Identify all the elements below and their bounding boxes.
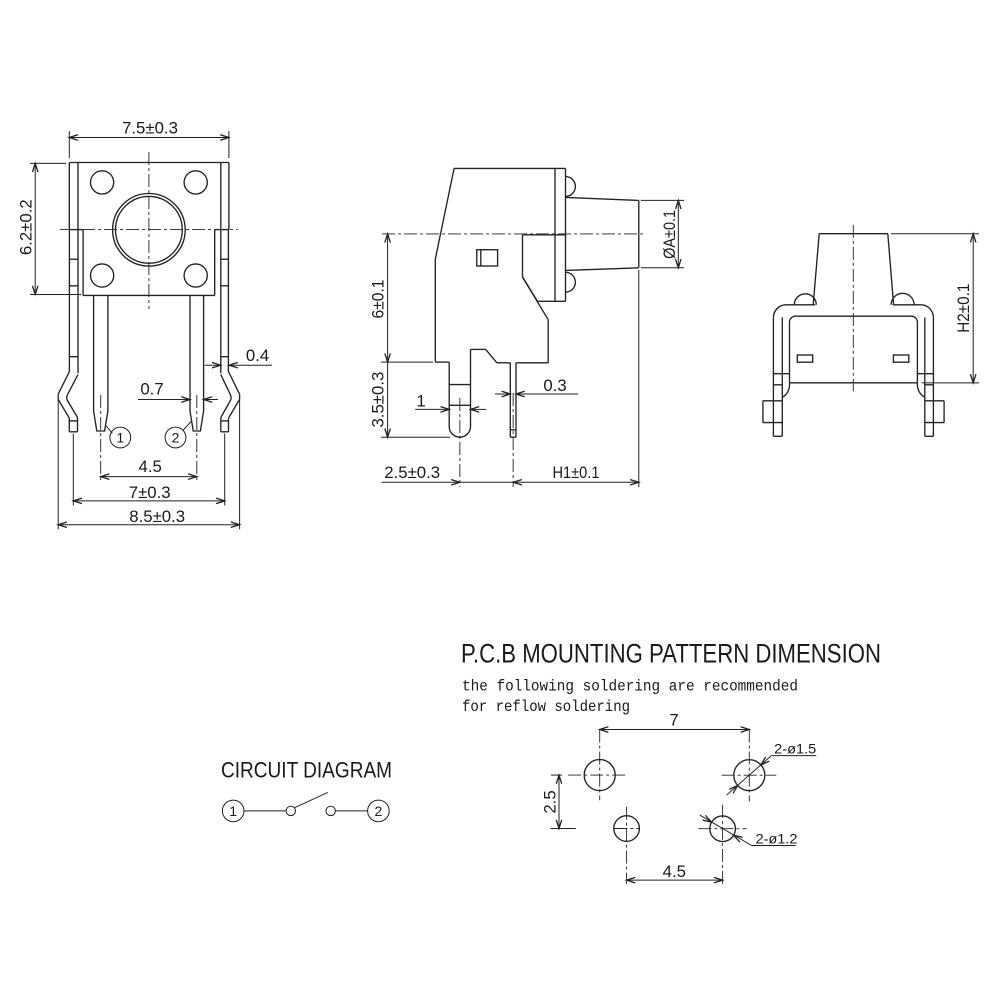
svg-text:2-ø1.5: 2-ø1.5 bbox=[774, 741, 816, 756]
svg-text:2.5±0.3: 2.5±0.3 bbox=[384, 463, 440, 482]
svg-text:1: 1 bbox=[416, 391, 425, 410]
svg-text:H2±0.1: H2±0.1 bbox=[954, 284, 973, 333]
svg-text:for reflow soldering: for reflow soldering bbox=[462, 698, 630, 716]
svg-text:4.5: 4.5 bbox=[663, 862, 686, 881]
svg-text:1: 1 bbox=[116, 430, 124, 446]
svg-text:0.4: 0.4 bbox=[246, 346, 269, 365]
svg-text:2: 2 bbox=[172, 430, 180, 446]
svg-text:6.2±0.2: 6.2±0.2 bbox=[16, 199, 35, 255]
svg-text:1: 1 bbox=[229, 803, 237, 819]
svg-text:0.7: 0.7 bbox=[140, 380, 163, 399]
svg-text:the following soldering are re: the following soldering are recommended bbox=[462, 678, 798, 696]
svg-text:P.C.B MOUNTING PATTERN DIMENSI: P.C.B MOUNTING PATTERN DIMENSION bbox=[461, 639, 881, 669]
svg-text:2.5: 2.5 bbox=[540, 790, 559, 813]
svg-text:0.3: 0.3 bbox=[543, 376, 566, 395]
svg-text:CIRCUIT DIAGRAM: CIRCUIT DIAGRAM bbox=[221, 757, 392, 782]
svg-text:6±0.1: 6±0.1 bbox=[369, 280, 388, 319]
svg-text:7±0.3: 7±0.3 bbox=[129, 483, 171, 502]
svg-text:8.5±0.3: 8.5±0.3 bbox=[129, 507, 185, 526]
svg-text:ØA±0.1: ØA±0.1 bbox=[660, 210, 679, 259]
svg-text:7: 7 bbox=[669, 711, 678, 730]
svg-text:7.5±0.3: 7.5±0.3 bbox=[122, 119, 178, 138]
svg-text:4.5: 4.5 bbox=[139, 457, 162, 476]
svg-text:3.5±0.3: 3.5±0.3 bbox=[369, 372, 388, 428]
svg-text:H1±0.1: H1±0.1 bbox=[553, 463, 600, 482]
svg-text:2: 2 bbox=[375, 803, 383, 819]
svg-text:2-ø1.2: 2-ø1.2 bbox=[756, 832, 798, 847]
